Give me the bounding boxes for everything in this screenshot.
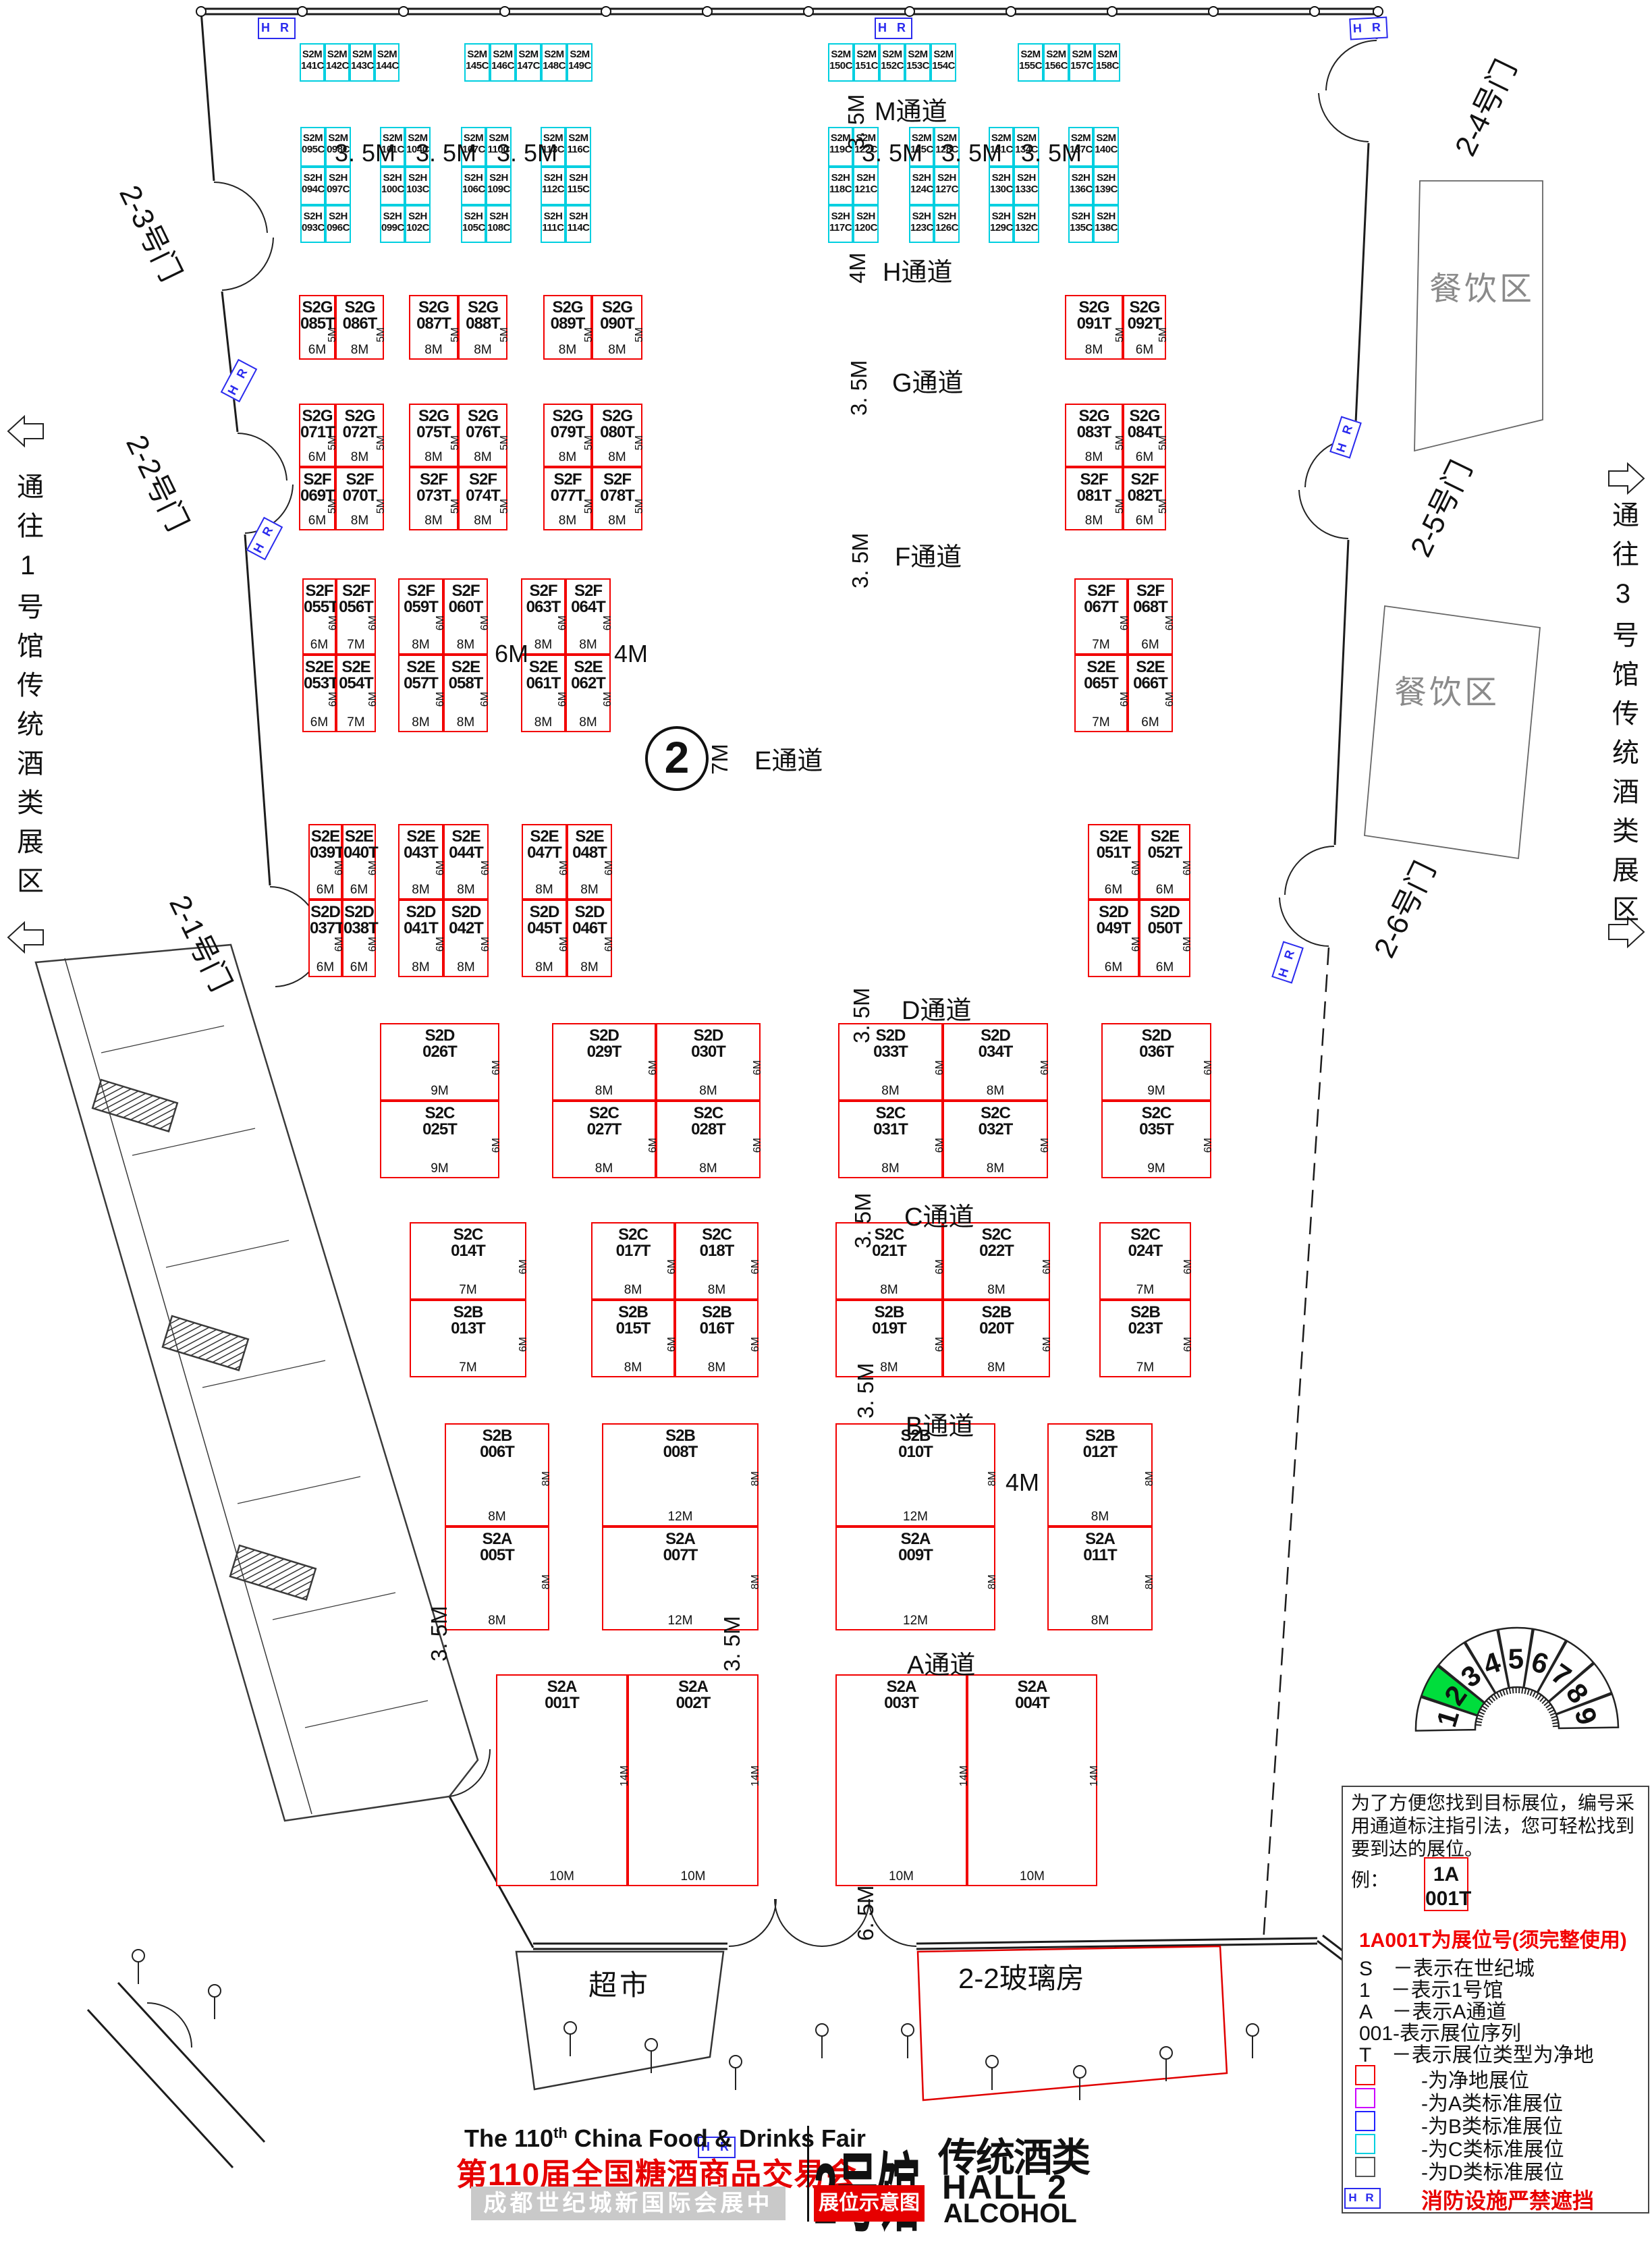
booth-width-dim: 8M [944,1360,1049,1375]
legend-intro-line: 为了方便您找到目标展位，编号采 [1351,1794,1645,1813]
booth-depth-dim: 6M [1182,1259,1194,1274]
booth-id: S2H130C [990,168,1012,196]
booth-depth-dim: 6M [603,937,615,952]
booth-S2E062T[interactable]: S2E062T8M6M [566,655,611,732]
booth-width-dim: 8M [676,1283,757,1298]
dim-m-3: 3. 5M [497,139,557,167]
booth-S2H102C[interactable]: S2H102C [405,205,431,243]
booth-S2C022T[interactable]: S2C022T8M6M [943,1222,1050,1300]
booth-width-dim: 8M [944,1283,1049,1298]
booth-S2H123C[interactable]: S2H123C [909,205,934,243]
booth-S2G075T[interactable]: S2G075T8M5M [409,404,458,467]
booth-depth-dim: 5M [634,327,646,342]
dim-aisle-A: 3. 5M [719,1616,745,1672]
booth-id: S2E054T [337,656,375,692]
booth-id: S2F055T [304,580,335,616]
booth-S2E044T[interactable]: S2E044T8M6M [443,824,489,900]
booth-depth-dim: 8M [541,1471,553,1486]
booth-S2D037T[interactable]: S2D037T6M6M [308,900,342,977]
booth-width-dim: 8M [523,883,566,898]
booth-S2B006T[interactable]: S2B006T8M8M [445,1423,549,1527]
booth-S2A009T[interactable]: S2A009T12M8M [835,1527,995,1630]
booth-S2C018T[interactable]: S2C018T8M6M [675,1222,759,1300]
booth-S2F055T[interactable]: S2F055T6M6M [302,578,336,655]
booth-S2A003T[interactable]: S2A003T10M14M [835,1674,967,1886]
booth-id: S2B012T [1049,1425,1151,1461]
booth-S2D045T[interactable]: S2D045T8M6M [522,900,567,977]
booth-S2A011T[interactable]: S2A011T8M8M [1047,1527,1153,1630]
booth-S2H109C[interactable]: S2H109C [486,167,512,205]
booth-id: S2H127C [935,168,958,196]
booth-S2H135C[interactable]: S2H135C [1068,205,1093,243]
booth-S2D036T[interactable]: S2D036T9M6M [1101,1023,1211,1101]
booth-id: S2H123C [910,207,933,234]
booth-width-dim: 10M [837,1869,966,1884]
booth-S2H112C[interactable]: S2H112C [541,167,566,205]
booth-id: S2E057T [400,656,442,692]
booth-S2B020T[interactable]: S2B020T8M6M [943,1300,1050,1377]
booth-width-dim: 8M [567,715,609,730]
booth-S2M149C[interactable]: S2M149C [567,43,593,82]
booth-S2A001T[interactable]: S2A001T10M14M [496,1674,628,1886]
fire-hydrant-box: H R [875,18,912,39]
booth-width-dim: 8M [445,960,487,975]
booth-S2F060T[interactable]: S2F060T8M6M [443,578,488,655]
booth-id: S2M147C [517,45,540,72]
booth-id: S2H120C [854,207,877,234]
booth-depth-dim: 6M [1164,692,1176,707]
booth-id: S2F067T [1076,580,1126,616]
booth-S2C014T[interactable]: S2C014T7M6M [410,1222,526,1300]
booth-id: S2F068T [1129,580,1172,616]
booth-id: S2E061T [522,656,564,692]
booth-S2G079T[interactable]: S2G079T8M5M [543,404,592,467]
booth-S2F064T[interactable]: S2F064T8M6M [566,578,611,655]
dim-aisle-H: 4M [845,252,871,283]
booth-width-dim: 10M [629,1869,757,1884]
booth-depth-dim: 8M [541,1574,553,1589]
booth-id: S2E052T [1140,825,1189,862]
booth-id: S2B016T [676,1301,757,1338]
booth-S2F070T[interactable]: S2F070T8M5M [335,467,384,530]
booth-id: S2D050T [1140,901,1189,937]
booth-S2M151C[interactable]: S2M151C [854,43,879,82]
booth-id: S2M144C [376,45,398,72]
booth-S2C032T[interactable]: S2C032T8M6M [943,1101,1048,1178]
booth-S2G090T[interactable]: S2G090T8M5M [592,295,642,360]
booth-S2M095C[interactable]: S2M095C [300,127,325,167]
booth-S2E043T[interactable]: S2E043T8M6M [398,824,443,900]
booth-S2H130C[interactable]: S2H130C [989,167,1014,205]
booth-S2E040T[interactable]: S2E040T6M6M [342,824,376,900]
booth-S2E039T[interactable]: S2E039T6M6M [308,824,342,900]
booth-S2H133C[interactable]: S2H133C [1014,167,1039,205]
booth-S2G086T[interactable]: S2G086T8M5M [335,295,384,360]
booth-S2E066T[interactable]: S2E066T6M6M [1128,655,1173,732]
booth-id: S2E043T [400,825,442,862]
booth-id: S2B006T [446,1425,548,1461]
booth-S2M158C[interactable]: S2M158C [1095,43,1120,82]
booth-S2D050T[interactable]: S2D050T6M6M [1139,900,1190,977]
booth-S2B012T[interactable]: S2B012T8M8M [1047,1423,1153,1527]
booth-S2F078T[interactable]: S2F078T8M5M [592,467,642,530]
booth-id: S2M145C [466,45,489,72]
booth-S2H106C[interactable]: S2H106C [461,167,486,205]
booth-id: S2E040T [343,825,375,862]
booth-id: S2C027T [553,1102,655,1138]
booth-S2H103C[interactable]: S2H103C [405,167,431,205]
booth-width-dim: 8M [460,514,506,528]
booth-S2A004T[interactable]: S2A004T10M14M [967,1674,1097,1886]
booth-width-dim: 8M [445,715,487,730]
booth-id: S2D034T [944,1024,1047,1061]
booth-S2B019T[interactable]: S2B019T8M6M [835,1300,943,1377]
booth-width-dim: 8M [337,514,383,528]
booth-S2G087T[interactable]: S2G087T8M5M [409,295,458,360]
booth-S2H100C[interactable]: S2H100C [380,167,405,205]
booth-S2H120C[interactable]: S2H120C [853,205,879,243]
booth-S2H132C[interactable]: S2H132C [1014,205,1039,243]
booth-S2G092T[interactable]: S2G092T6M5M [1123,295,1166,360]
booth-S2A002T[interactable]: S2A002T10M14M [628,1674,759,1886]
booth-S2M140C[interactable]: S2M140C [1093,127,1119,167]
booth-id: S2F056T [337,580,375,616]
booth-width-dim: 8M [657,1084,759,1099]
booth-width-dim: 8M [676,1360,757,1375]
booth-S2G071T[interactable]: S2G071T6M5M [299,404,335,467]
booth-width-dim: 7M [1101,1360,1190,1375]
booth-id: S2H138C [1095,207,1118,234]
booth-id: S2M154C [932,45,955,72]
booth-S2H114C[interactable]: S2H114C [566,205,591,243]
booth-S2H094C[interactable]: S2H094C [300,167,325,205]
booth-S2H111C[interactable]: S2H111C [541,205,566,243]
booth-S2H115C[interactable]: S2H115C [566,167,591,205]
booth-S2G084T[interactable]: S2G084T6M5M [1123,404,1166,467]
booth-width-dim: 8M [400,715,442,730]
corridor-left-text: 通往1号馆传统酒类展区 [8,472,47,906]
booth-S2D029T[interactable]: S2D029T8M6M [552,1023,656,1101]
dining-area-1: 餐饮区 [1429,262,1535,309]
booth-S2F077T[interactable]: S2F077T8M5M [543,467,592,530]
fair-title-en-pre: The 110 [464,2124,553,2152]
booth-S2H118C[interactable]: S2H118C [828,167,853,205]
fire-warning: 消防设施严禁遮挡 [1421,2184,1594,2215]
booth-S2H129C[interactable]: S2H129C [989,205,1014,243]
aisle-H: H通道 [883,251,952,288]
booth-id: S2B013T [411,1301,525,1338]
booth-S2H127C[interactable]: S2H127C [934,167,960,205]
booth-id: S2H114C [567,207,590,234]
booth-S2E057T[interactable]: S2E057T8M6M [398,655,443,732]
booth-S2M148C[interactable]: S2M148C [541,43,567,82]
booth-id: S2E053T [304,656,335,692]
booth-S2G091T[interactable]: S2G091T8M5M [1065,295,1123,360]
booth-S2G089T[interactable]: S2G089T8M5M [543,295,592,360]
booth-id: S2H105C [462,207,485,234]
booth-S2M153C[interactable]: S2M153C [905,43,931,82]
booth-S2E052T[interactable]: S2E052T6M6M [1139,824,1190,900]
booth-S2E065T[interactable]: S2E065T7M6M [1074,655,1128,732]
booth-width-dim: 8M [1066,450,1122,465]
booth-id: S2C032T [944,1102,1047,1138]
booth-width-dim: 9M [1103,1084,1210,1099]
booth-S2G083T[interactable]: S2G083T8M5M [1065,404,1123,467]
booth-width-dim: 8M [410,343,457,358]
booth-S2H138C[interactable]: S2H138C [1093,205,1119,243]
dining-area-2: 餐饮区 [1394,665,1499,713]
booth-id: S2C018T [676,1224,757,1260]
booth-id: S2C025T [381,1102,498,1138]
booth-S2F067T[interactable]: S2F067T7M6M [1074,578,1128,655]
booth-S2M155C[interactable]: S2M155C [1018,43,1043,82]
booth-width-dim: 7M [411,1283,525,1298]
booth-S2B013T[interactable]: S2B013T7M6M [410,1300,526,1377]
dim-aisle-D: 3. 5M [849,987,875,1043]
booth-depth-dim: 6M [367,692,379,707]
booth-id: S2D038T [343,901,375,937]
aisle-D: D通道 [902,989,971,1026]
booth-S2C017T[interactable]: S2C017T8M6M [591,1222,675,1300]
booth-S2D034T[interactable]: S2D034T8M6M [943,1023,1048,1101]
booth-id: S2H124C [910,168,933,196]
booth-S2H139C[interactable]: S2H139C [1093,167,1119,205]
booth-width-dim: 6M [310,960,341,975]
booth-S2D046T[interactable]: S2D046T8M6M [567,900,612,977]
category-title-en: ALCOHOL [943,2199,1077,2229]
booth-width-dim: 9M [1103,1161,1210,1176]
dim-m-5: 3. 5M [941,139,1002,167]
booth-width-dim: 6M [1124,343,1165,358]
booth-id: S2H121C [854,168,877,196]
booth-depth-dim: 14M [1089,1765,1101,1786]
booth-S2D026T[interactable]: S2D026T9M6M [380,1023,499,1101]
booth-id: S2H135C [1070,207,1092,234]
booth-S2C028T[interactable]: S2C028T8M6M [656,1101,761,1178]
booth-S2M154C[interactable]: S2M154C [931,43,956,82]
booth-depth-dim: 6M [602,692,614,707]
booth-S2B015T[interactable]: S2B015T8M6M [591,1300,675,1377]
booth-depth-dim: 6M [367,937,379,952]
booth-depth-dim: 5M [499,327,511,342]
booth-id: S2A007T [603,1528,757,1564]
booth-width-dim: 8M [545,514,590,528]
booth-S2D041T[interactable]: S2D041T8M6M [398,900,443,977]
booth-depth-dim: 5M [1157,327,1169,342]
legend-example-top: 1A [1433,1863,1459,1886]
booth-width-dim: 8M [839,1161,941,1176]
dim-aisle-F: 3. 5M [848,532,873,588]
booth-S2H108C[interactable]: S2H108C [486,205,512,243]
aisle-E: E通道 [754,740,823,777]
booth-S2F074T[interactable]: S2F074T8M5M [458,467,507,530]
legend-swatch-label: -为D类标准展位 [1421,2155,1644,2185]
booth-S2M146C[interactable]: S2M146C [490,43,516,82]
booth-S2G088T[interactable]: S2G088T8M5M [458,295,507,360]
booth-id: S2E062T [567,656,609,692]
booth-S2D042T[interactable]: S2D042T8M6M [443,900,489,977]
booth-width-dim: 8M [1049,1614,1151,1628]
booth-S2M141C[interactable]: S2M141C [300,43,325,82]
booth-S2F059T[interactable]: S2F059T8M6M [398,578,443,655]
booth-depth-dim: 14M [750,1765,762,1786]
booth-id: S2D045T [523,901,566,937]
booth-S2D030T[interactable]: S2D030T8M6M [656,1023,761,1101]
booth-id: S2C014T [411,1224,525,1260]
booth-id: S2A005T [446,1528,548,1564]
booth-S2C024T[interactable]: S2C024T7M6M [1099,1222,1191,1300]
booth-id: S2M140C [1095,128,1118,156]
booth-depth-dim: 8M [1144,1471,1156,1486]
booth-width-dim: 12M [603,1510,757,1524]
fan-hall-number: 5 [1508,1643,1524,1674]
booth-depth-dim: 5M [499,435,511,450]
booth-S2F081T[interactable]: S2F081T8M5M [1065,467,1123,530]
booth-id: S2B019T [837,1301,941,1338]
booth-depth-dim: 6M [752,1138,764,1153]
booth-depth-dim: 5M [375,499,387,514]
floor-plan: 123456789 S2G085T6M5MS2G086T8M5MS2G087T8… [0,0,1652,2231]
booth-S2H121C[interactable]: S2H121C [853,167,879,205]
hall-number-circle: 2 [645,726,709,791]
booth-id: S2M143C [351,45,373,72]
booth-id: S2M155C [1019,45,1042,72]
booth-S2M142C[interactable]: S2M142C [325,43,350,82]
booth-id: S2H096C [327,207,350,234]
booth-width-dim: 8M [593,450,641,465]
booth-width-dim: 8M [944,1084,1047,1099]
booth-id: S2M149C [568,45,591,72]
booth-width-dim: 7M [1076,638,1126,653]
booth-id: S2E051T [1089,825,1138,862]
booth-width-dim: 8M [410,514,457,528]
booth-id: S2D026T [381,1024,498,1061]
booth-S2H105C[interactable]: S2H105C [461,205,486,243]
booth-S2E058T[interactable]: S2E058T8M6M [443,655,488,732]
booth-S2H136C[interactable]: S2H136C [1068,167,1093,205]
booth-S2A007T[interactable]: S2A007T12M8M [602,1527,759,1630]
booth-id: S2B020T [944,1301,1049,1338]
booth-width-dim: 6M [1089,960,1138,975]
booth-id: S2H129C [990,207,1012,234]
booth-id: S2H100C [381,168,404,196]
legend-example-booth: 1A 001T [1424,1857,1468,1911]
booth-S2C031T[interactable]: S2C031T8M6M [838,1101,943,1178]
booth-S2M145C[interactable]: S2M145C [464,43,490,82]
booth-id: S2E047T [523,825,566,862]
booth-S2M156C[interactable]: S2M156C [1043,43,1069,82]
booth-S2G080T[interactable]: S2G080T8M5M [592,404,642,467]
booth-width-dim: 8M [593,1283,673,1298]
booth-S2E054T[interactable]: S2E054T7M6M [336,655,376,732]
booth-S2H126C[interactable]: S2H126C [934,205,960,243]
booth-id: S2E066T [1129,656,1172,692]
booth-S2M152C[interactable]: S2M152C [879,43,905,82]
booth-S2M147C[interactable]: S2M147C [516,43,541,82]
booth-depth-dim: 8M [987,1471,999,1486]
booth-S2G076T[interactable]: S2G076T8M5M [458,404,507,467]
booth-S2F082T[interactable]: S2F082T6M5M [1123,467,1166,530]
booth-S2H097C[interactable]: S2H097C [325,167,351,205]
booth-S2C027T[interactable]: S2C027T8M6M [552,1101,656,1178]
booth-S2D038T[interactable]: S2D038T6M6M [342,900,376,977]
booth-width-dim: 8M [568,960,611,975]
booth-width-dim: 8M [522,715,564,730]
booth-S2H117C[interactable]: S2H117C [828,205,853,243]
booth-depth-dim: 6M [750,1259,762,1274]
booth-width-dim: 8M [337,343,383,358]
booth-S2E047T[interactable]: S2E047T8M6M [522,824,567,900]
booth-S2C035T[interactable]: S2C035T9M6M [1101,1101,1211,1178]
booth-width-dim: 6M [1124,514,1165,528]
booth-id: S2H097C [327,168,350,196]
booth-S2B023T[interactable]: S2B023T7M6M [1099,1300,1191,1377]
booth-S2E051T[interactable]: S2E051T6M6M [1088,824,1139,900]
booth-S2H093C[interactable]: S2H093C [300,205,325,243]
booth-id: S2F063T [522,580,564,616]
booth-id: S2M150C [829,45,852,72]
booth-S2H096C[interactable]: S2H096C [325,205,351,243]
dim-aisle-C: 3. 5M [850,1192,876,1248]
booth-S2B008T[interactable]: S2B008T12M8M [602,1423,759,1527]
booth-id: S2C028T [657,1102,759,1138]
booth-S2C025T[interactable]: S2C025T9M6M [380,1101,499,1178]
booth-id: S2M158C [1096,45,1119,72]
booth-id: S2C031T [839,1102,941,1138]
booth-width-dim: 8M [593,343,641,358]
booth-width-dim: 7M [337,715,375,730]
booth-S2E048T[interactable]: S2E048T8M6M [567,824,612,900]
legend-swatch [1355,2088,1375,2108]
booth-depth-dim: 6M [367,615,379,630]
booth-id: S2C017T [593,1224,673,1260]
booth-S2F056T[interactable]: S2F056T7M6M [336,578,376,655]
booth-S2F069T[interactable]: S2F069T6M5M [299,467,335,530]
booth-S2D049T[interactable]: S2D049T6M6M [1088,900,1139,977]
booth-depth-dim: 6M [752,1060,764,1075]
booth-S2M150C[interactable]: S2M150C [828,43,854,82]
booth-S2F073T[interactable]: S2F073T8M5M [409,467,458,530]
booth-width-dim: 8M [944,1161,1047,1176]
booth-id: S2M146C [491,45,514,72]
booth-S2A005T[interactable]: S2A005T8M8M [445,1527,549,1630]
booth-S2G085T[interactable]: S2G085T6M5M [299,295,335,360]
booth-S2B016T[interactable]: S2B016T8M6M [675,1300,759,1377]
booth-S2H099C[interactable]: S2H099C [380,205,405,243]
booth-depth-dim: 5M [634,435,646,450]
booth-width-dim: 8M [1066,343,1122,358]
booth-S2F068T[interactable]: S2F068T6M6M [1128,578,1173,655]
booth-id: S2E039T [310,825,341,862]
booth-S2M144C[interactable]: S2M144C [375,43,400,82]
booth-S2M157C[interactable]: S2M157C [1069,43,1095,82]
booth-depth-dim: 6M [479,692,491,707]
booth-S2G072T[interactable]: S2G072T8M5M [335,404,384,467]
booth-width-dim: 7M [1076,715,1126,730]
booth-id: S2H109C [487,168,510,196]
booth-id: S2H093C [302,207,324,234]
booth-S2M143C[interactable]: S2M143C [350,43,375,82]
booth-S2E053T[interactable]: S2E053T6M6M [302,655,336,732]
booth-id: S2H126C [935,207,958,234]
booth-S2M116C[interactable]: S2M116C [566,127,591,167]
booth-S2H124C[interactable]: S2H124C [909,167,934,205]
booth-width-dim: 8M [593,1360,673,1375]
booth-id: S2M151C [855,45,878,72]
booth-width-dim: 12M [837,1614,994,1628]
booth-width-dim: 6M [1140,883,1189,898]
booth-depth-dim: 5M [499,499,511,514]
